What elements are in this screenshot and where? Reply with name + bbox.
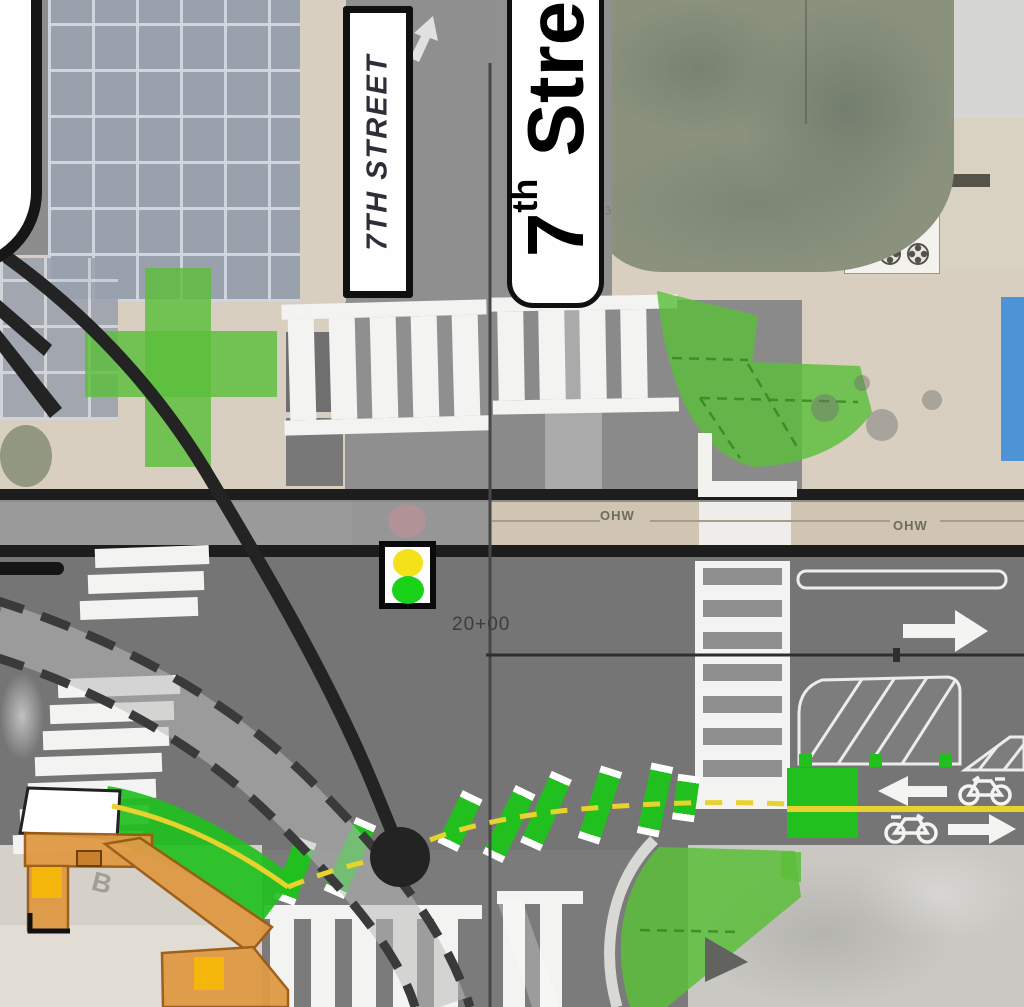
green-bike-box [787, 768, 858, 838]
green-plaza-cross-horizontal [85, 331, 277, 397]
faded-existing-crosswalk [497, 900, 560, 1007]
platform-equipment [77, 851, 101, 866]
street-sign-large-label: 7th Stre [510, 1, 602, 257]
street-sign-small: 7TH STREET [343, 6, 413, 298]
signal-yellow-light [393, 549, 423, 577]
station-label: 20+00 [452, 614, 510, 636]
green-verge [781, 852, 801, 882]
median-island [798, 571, 1006, 588]
street-sign-small-label: 7TH STREET [362, 53, 395, 250]
street-sign-large: 7th Stre [507, 0, 604, 308]
platform-amenity [32, 867, 62, 898]
green-curb-extension-northeast [657, 291, 872, 467]
street-name: Stre [511, 1, 600, 157]
traffic-signal-icon [379, 541, 436, 609]
leader-wedges [0, 300, 62, 418]
platform-amenity [194, 957, 224, 990]
signal-green-light [392, 576, 424, 604]
callout-leader-dot-icon [370, 827, 430, 887]
green-curb-extension-southeast [621, 847, 801, 1007]
intersection-plan-map: OHW OHW 23 B [0, 0, 1024, 1007]
street-ordinal: th [504, 179, 545, 213]
station-tick [893, 648, 900, 662]
shelter-canopy [20, 788, 120, 838]
street-number: 7 [511, 213, 600, 258]
